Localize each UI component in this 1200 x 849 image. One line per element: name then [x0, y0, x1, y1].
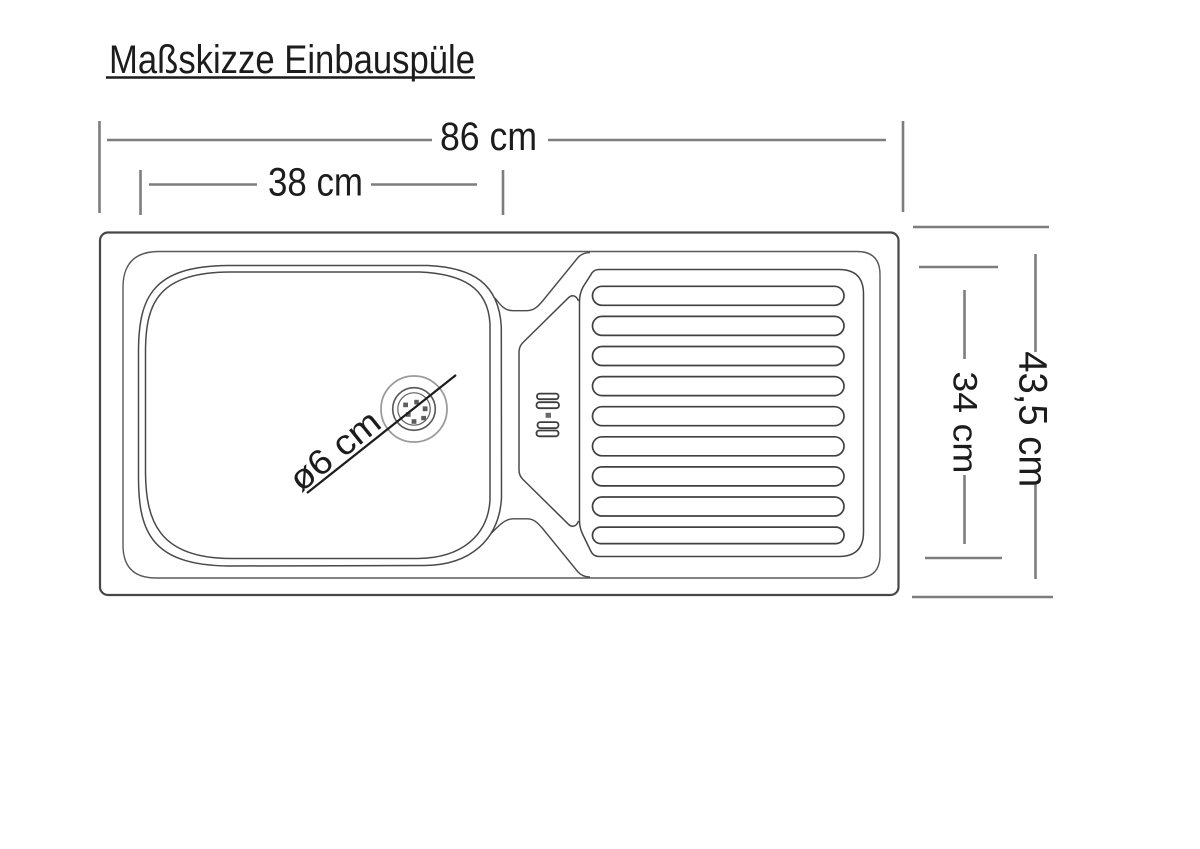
svg-text:38 cm: 38 cm	[268, 161, 363, 205]
svg-text:Maßskizze Einbauspüle: Maßskizze Einbauspüle	[109, 38, 475, 82]
svg-text:86 cm: 86 cm	[440, 115, 537, 159]
svg-text:43,5 cm: 43,5 cm	[1011, 351, 1055, 487]
svg-text:34 cm: 34 cm	[946, 371, 984, 473]
